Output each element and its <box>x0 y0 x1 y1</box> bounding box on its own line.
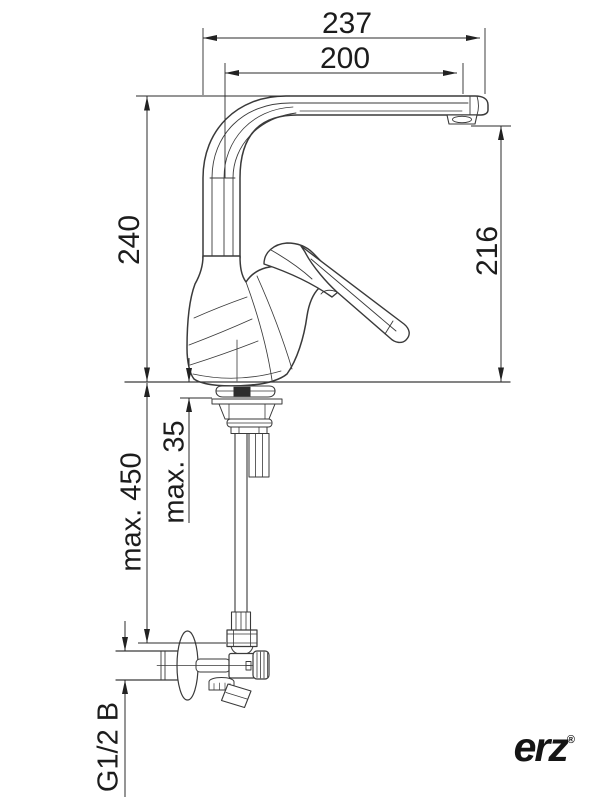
dim-label-216: 216 <box>473 226 503 276</box>
brand-logo-text: erz <box>514 724 567 770</box>
dim-label-237: 237 <box>322 9 372 39</box>
threaded-stud <box>249 434 269 478</box>
drawing-page: 237 200 240 216 max. 450 max. 35 G1/2 B … <box>0 0 600 800</box>
dim-label-g12b: G1/2 B <box>95 702 124 792</box>
handwheel <box>253 651 269 679</box>
aerator <box>447 115 477 124</box>
dim-label-240: 240 <box>115 215 145 265</box>
brand-logo: erz® <box>514 727 575 768</box>
body-shank-section <box>234 387 251 397</box>
compression-nut <box>227 630 257 647</box>
spout-and-riser <box>203 96 488 281</box>
dim-label-200: 200 <box>320 44 370 74</box>
faucet-technical-drawing <box>0 0 600 800</box>
dim-label-max-35: max. 35 <box>161 420 190 523</box>
registered-trademark-icon: ® <box>567 734 575 746</box>
dim-label-max-450: max. 450 <box>118 452 147 571</box>
mounting-plate <box>212 399 282 404</box>
spout-outline <box>203 96 488 258</box>
fixing-nut <box>231 427 267 434</box>
